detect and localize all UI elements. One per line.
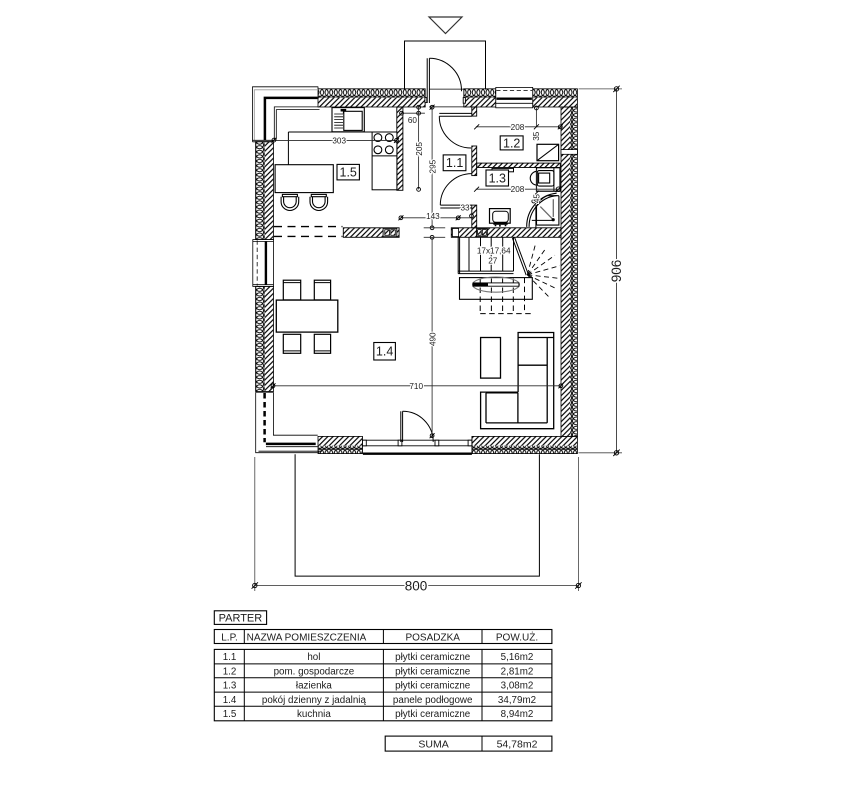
svg-text:1.1: 1.1 [223, 652, 237, 663]
svg-text:kuchnia: kuchnia [297, 709, 331, 720]
svg-text:1.3: 1.3 [223, 681, 237, 692]
svg-text:płytki ceramiczne: płytki ceramiczne [395, 709, 471, 720]
svg-text:1.1: 1.1 [446, 156, 463, 170]
svg-text:5,16m2: 5,16m2 [501, 652, 534, 663]
svg-text:1.4: 1.4 [223, 695, 237, 706]
svg-text:płytki ceramiczne: płytki ceramiczne [395, 681, 471, 692]
svg-text:800: 800 [405, 578, 428, 593]
svg-text:8,94m2: 8,94m2 [501, 709, 534, 720]
svg-text:17x17,64: 17x17,64 [477, 246, 511, 255]
svg-text:906: 906 [609, 260, 624, 283]
svg-text:L.P.: L.P. [221, 633, 238, 644]
svg-text:295: 295 [428, 159, 437, 173]
svg-text:POW.UŻ.: POW.UŻ. [496, 631, 538, 644]
svg-text:łazienka: łazienka [296, 681, 332, 692]
svg-text:panele podłogowe: panele podłogowe [393, 695, 473, 706]
svg-text:54,78m2: 54,78m2 [497, 739, 538, 751]
svg-text:60: 60 [408, 116, 418, 125]
svg-text:1.5: 1.5 [340, 166, 357, 180]
svg-text:205: 205 [415, 142, 424, 156]
svg-text:143: 143 [426, 212, 440, 221]
svg-text:1.4: 1.4 [376, 345, 393, 359]
svg-text:płytki ceramiczne: płytki ceramiczne [395, 666, 471, 677]
svg-text:2,81m2: 2,81m2 [501, 666, 534, 677]
svg-text:208: 208 [511, 123, 525, 132]
svg-text:SUMA: SUMA [418, 739, 448, 751]
svg-text:1.2: 1.2 [223, 666, 237, 677]
svg-text:1.5: 1.5 [223, 709, 237, 720]
svg-text:1.3: 1.3 [489, 172, 506, 186]
svg-text:303: 303 [332, 136, 346, 145]
svg-text:1.2: 1.2 [503, 137, 520, 151]
svg-text:POSADZKA: POSADZKA [405, 633, 460, 644]
svg-text:NAZWA POMIESZCZENIA: NAZWA POMIESZCZENIA [247, 633, 367, 644]
svg-text:34,79m2: 34,79m2 [498, 695, 536, 706]
svg-text:hol: hol [307, 652, 320, 663]
svg-text:27: 27 [488, 257, 498, 266]
svg-text:208: 208 [511, 185, 525, 194]
svg-text:pom. gospodarcze: pom. gospodarcze [274, 666, 355, 677]
svg-text:33: 33 [460, 204, 470, 213]
svg-text:35: 35 [532, 131, 541, 141]
svg-text:490: 490 [429, 332, 438, 346]
svg-text:pokój dzienny z jadalnią: pokój dzienny z jadalnią [262, 695, 367, 706]
svg-text:45: 45 [532, 194, 541, 204]
svg-text:710: 710 [409, 382, 423, 391]
svg-text:płytki ceramiczne: płytki ceramiczne [395, 652, 471, 663]
svg-text:3,08m2: 3,08m2 [501, 681, 534, 692]
svg-text:PARTER: PARTER [219, 613, 263, 625]
